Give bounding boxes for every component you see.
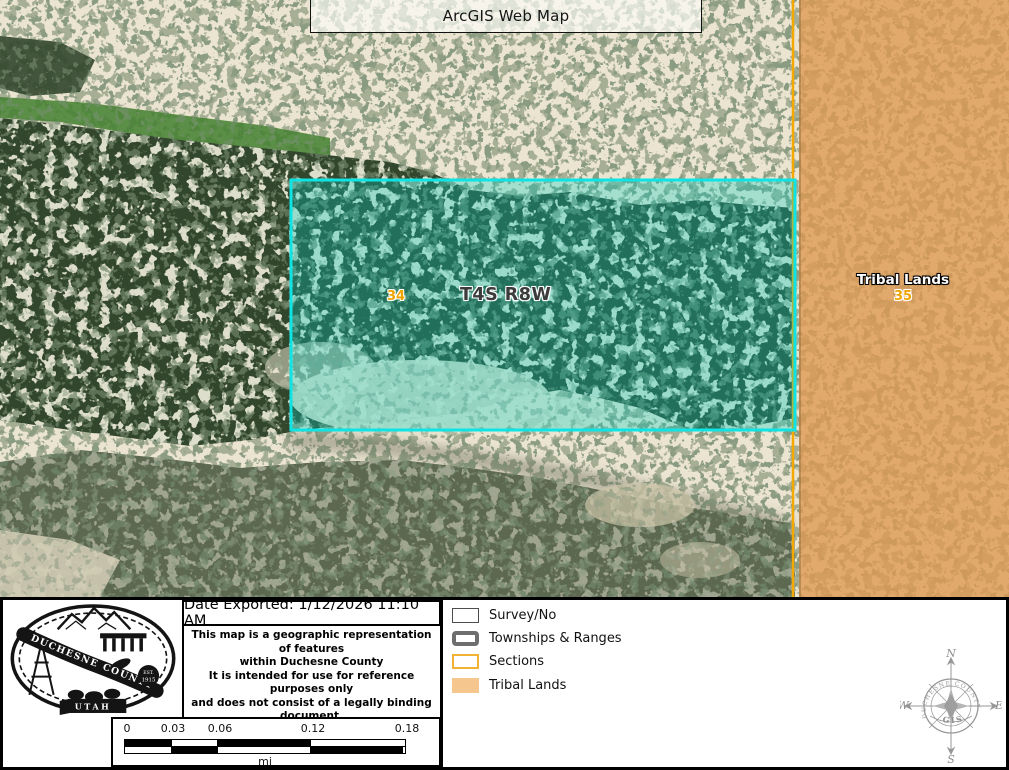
legend-label: Tribal Lands bbox=[489, 678, 566, 693]
legend-item-survey: Survey/No bbox=[452, 606, 556, 624]
disclaimer-line: It is intended for use for reference pur… bbox=[184, 670, 439, 697]
date-exported-text: Date Exported: 1/12/2026 11:10 AM bbox=[184, 597, 439, 629]
legend-swatch-survey bbox=[452, 608, 479, 623]
compass-south-label: S bbox=[947, 753, 955, 764]
map-export-page: ArcGIS Web Map 34 T4S R8W Tribal Lands 3… bbox=[0, 0, 1009, 770]
scale-tick: 0.18 bbox=[395, 722, 420, 735]
logo-est-year: 1915 bbox=[141, 678, 155, 684]
scale-bar-segments bbox=[124, 739, 406, 754]
legend-swatch-sections bbox=[452, 654, 479, 669]
legend-label: Sections bbox=[489, 654, 544, 669]
compass-east-label: E bbox=[994, 699, 1002, 712]
section-label-34: 34 bbox=[387, 289, 405, 304]
scale-tick: 0.12 bbox=[301, 722, 326, 735]
county-seal-graphic: DUCHESNE COUNTY EST. 1915 UTAH bbox=[7, 602, 179, 715]
disclaimer-line: This map is a geographic representation … bbox=[184, 629, 439, 656]
map-canvas[interactable]: ArcGIS Web Map 34 T4S R8W Tribal Lands 3… bbox=[0, 0, 1009, 597]
legend-item-sections: Sections bbox=[452, 652, 544, 670]
scale-tick: 0.06 bbox=[208, 722, 233, 735]
legend-item-tribal: Tribal Lands bbox=[452, 676, 566, 694]
compass-north-label: N bbox=[945, 648, 956, 660]
scale-unit: mi bbox=[258, 755, 272, 768]
tribal-lands-label: Tribal Lands bbox=[848, 272, 958, 288]
legend-label: Townships & Ranges bbox=[489, 631, 622, 646]
logo-est: EST. bbox=[143, 670, 154, 676]
compass-rose: DUCHESNE COUNTY GIS N S W E bbox=[900, 648, 1002, 764]
section-label-35: 35 bbox=[848, 289, 958, 304]
compass-rose-graphic: DUCHESNE COUNTY GIS N S W E bbox=[900, 648, 1002, 764]
map-title: ArcGIS Web Map bbox=[443, 7, 570, 25]
scale-bar: 0 0.03 0.06 0.12 0.18 mi bbox=[111, 717, 441, 767]
disclaimer-line: within Duchesne County bbox=[184, 656, 439, 670]
info-panel: DUCHESNE COUNTY EST. 1915 UTAH Date Expo… bbox=[0, 597, 1009, 770]
logo-state: UTAH bbox=[74, 701, 111, 711]
map-title-box: ArcGIS Web Map bbox=[310, 0, 702, 33]
scale-tick: 0 bbox=[124, 722, 131, 735]
county-logo: DUCHESNE COUNTY EST. 1915 UTAH bbox=[3, 600, 184, 717]
legend-item-townships: Townships & Ranges bbox=[452, 629, 622, 647]
legend-label: Survey/No bbox=[489, 608, 556, 623]
scale-tick: 0.03 bbox=[161, 722, 186, 735]
selected-parcel-outline bbox=[291, 180, 795, 430]
legend-swatch-tribal bbox=[452, 678, 479, 693]
date-exported-box: Date Exported: 1/12/2026 11:10 AM bbox=[182, 600, 441, 626]
township-range-label: T4S R8W bbox=[460, 285, 551, 305]
legend-swatch-townships bbox=[452, 631, 479, 646]
